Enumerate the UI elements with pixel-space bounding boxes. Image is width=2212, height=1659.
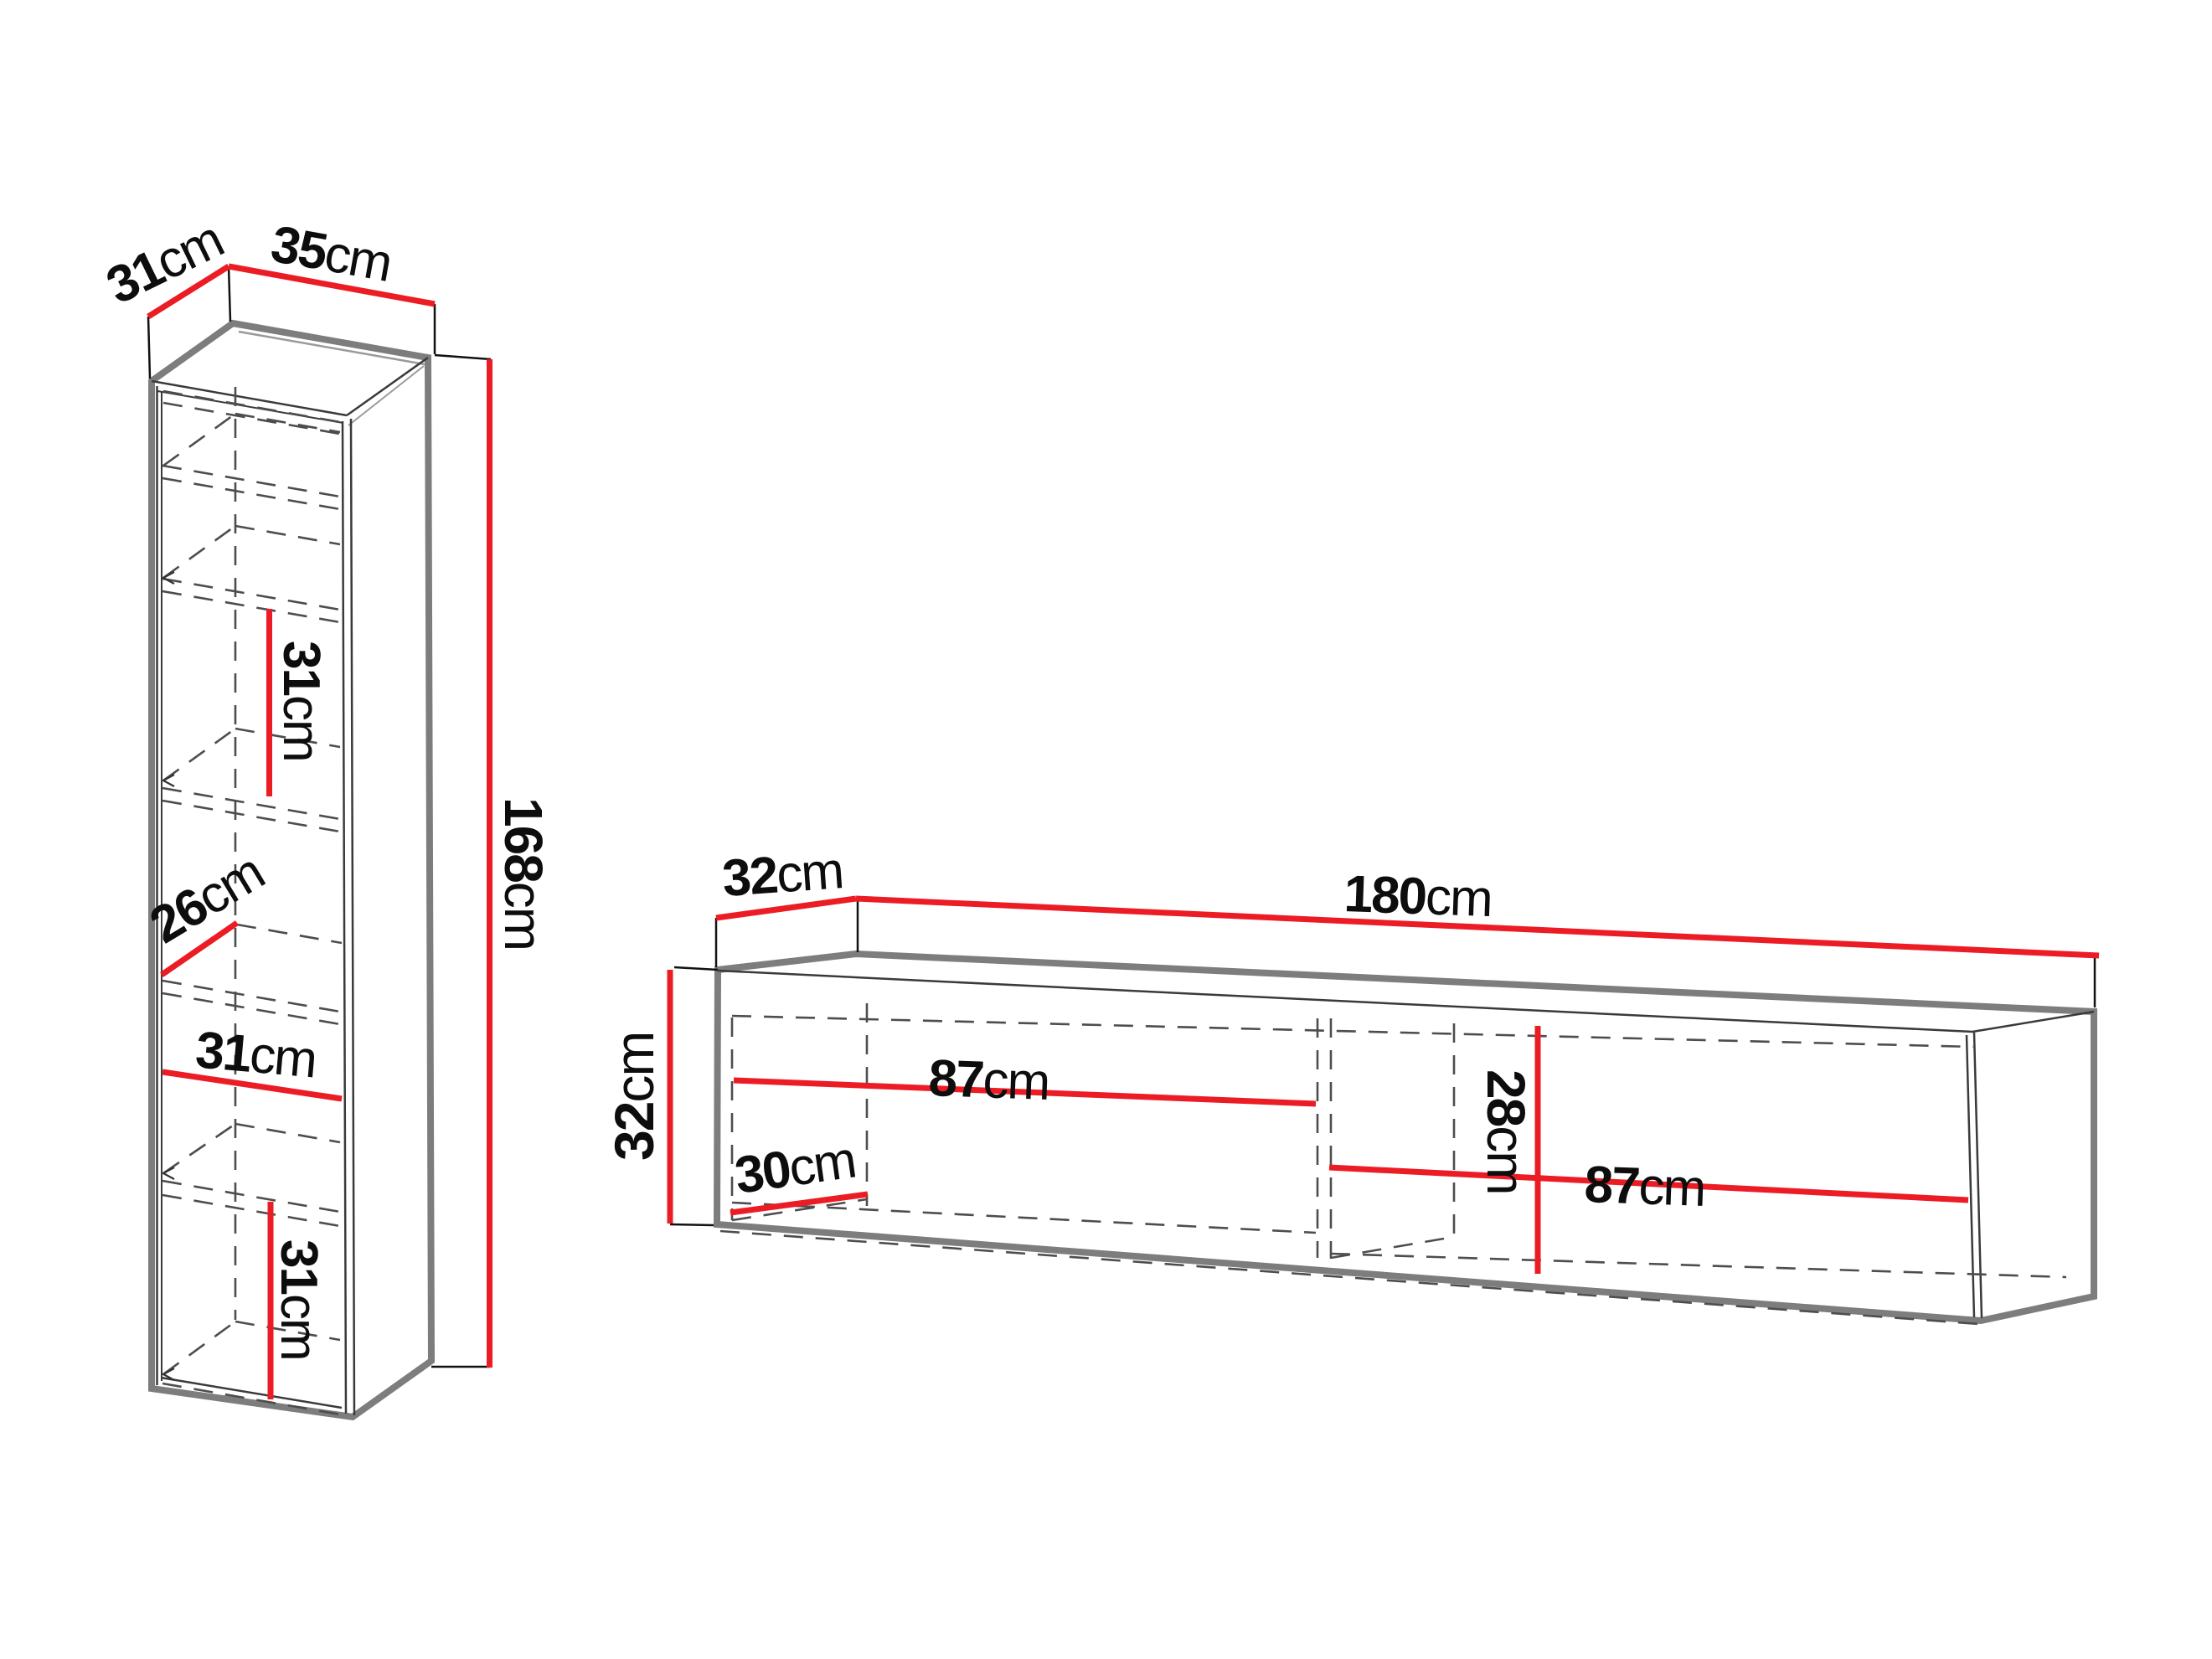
svg-text:28cm: 28cm: [1476, 1069, 1536, 1194]
svg-text:31cm: 31cm: [193, 1021, 318, 1089]
svg-text:31cm: 31cm: [272, 641, 330, 761]
svg-text:31cm: 31cm: [270, 1239, 327, 1360]
svg-text:168cm: 168cm: [493, 797, 554, 950]
svg-text:180cm: 180cm: [1343, 865, 1493, 928]
svg-text:32cm: 32cm: [720, 842, 844, 908]
svg-text:87cm: 87cm: [928, 1049, 1050, 1111]
svg-text:87cm: 87cm: [1584, 1156, 1706, 1218]
svg-text:32cm: 32cm: [603, 1033, 665, 1161]
